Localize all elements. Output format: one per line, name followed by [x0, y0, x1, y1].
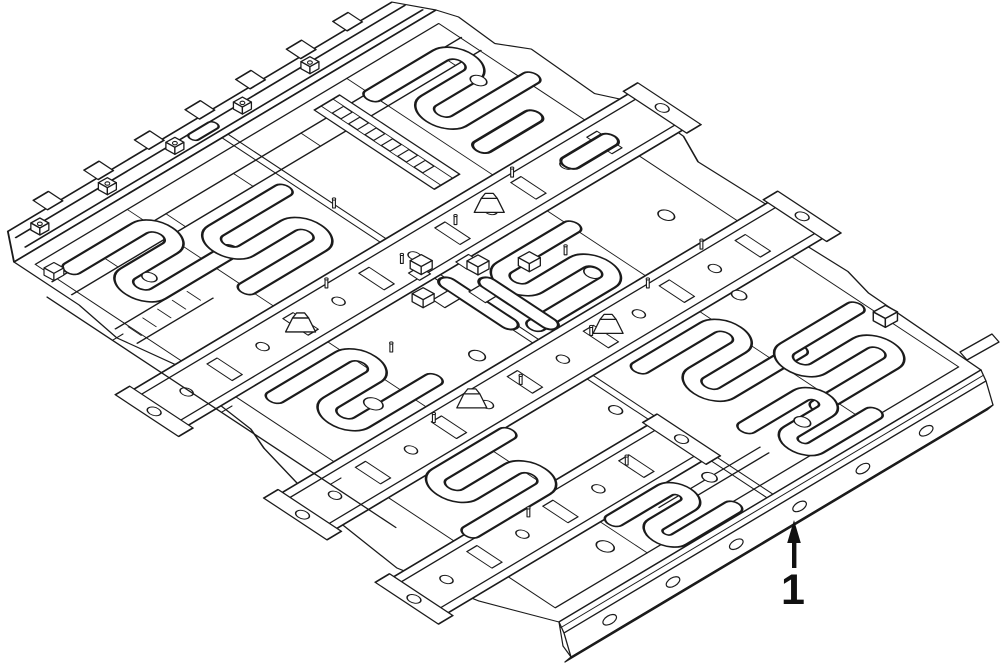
floor-pan-diagram: 1 — [0, 0, 1000, 664]
stud-peg-top — [625, 455, 628, 457]
stud-peg-top — [646, 278, 649, 280]
stud-peg-top — [332, 198, 335, 200]
callout-label: 1 — [781, 566, 805, 614]
clip-hole — [240, 101, 245, 104]
stud-peg-top — [590, 325, 593, 327]
stud-peg-top — [454, 214, 457, 216]
stud-peg-top — [325, 278, 328, 280]
clip-hole — [37, 222, 42, 225]
sill-end-step — [960, 334, 999, 360]
clip-hole — [105, 182, 110, 185]
floor-pan-line-art — [0, 0, 1000, 661]
stud-peg-top — [390, 342, 393, 344]
stud-peg-top — [700, 239, 703, 241]
stud-peg-top — [527, 507, 530, 509]
stud-peg-top — [432, 412, 435, 414]
callout-arrow-shaft — [792, 541, 796, 568]
stud-peg-top — [510, 167, 513, 169]
clip-hole — [308, 61, 313, 64]
diagram-canvas: 1 — [0, 0, 1000, 664]
stud-peg-top — [564, 245, 567, 247]
clip-hole — [172, 141, 177, 144]
part-callout[interactable]: 1 — [781, 520, 805, 614]
stud-peg-top — [519, 374, 522, 376]
stud-peg-top — [400, 253, 403, 255]
